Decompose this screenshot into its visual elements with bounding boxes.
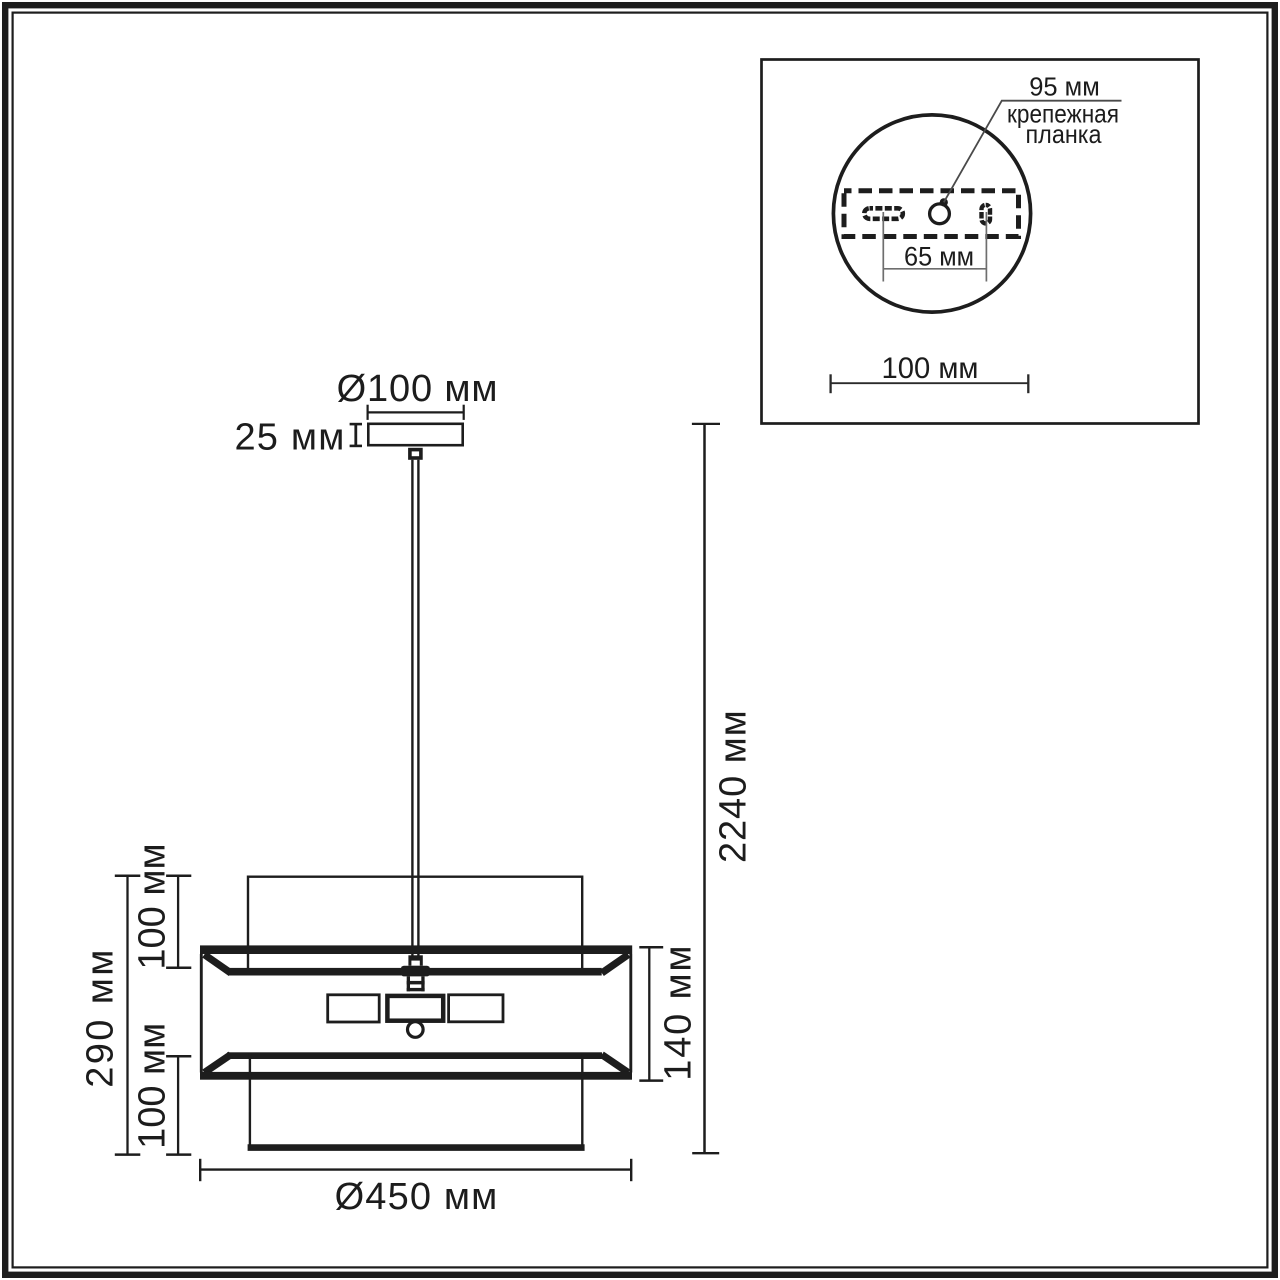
svg-text:планка: планка: [1026, 119, 1102, 149]
svg-text:290 мм: 290 мм: [80, 947, 122, 1088]
svg-text:65 мм: 65 мм: [904, 242, 974, 272]
svg-text:25 мм: 25 мм: [234, 416, 345, 458]
svg-text:95 мм: 95 мм: [1029, 74, 1100, 102]
svg-text:100 мм: 100 мм: [882, 352, 979, 385]
svg-text:Ø450 мм: Ø450 мм: [335, 1176, 499, 1218]
svg-text:100 мм: 100 мм: [132, 1023, 174, 1149]
svg-text:140 мм: 140 мм: [658, 944, 700, 1081]
svg-text:2240 мм: 2240 мм: [713, 709, 755, 863]
svg-text:100 мм: 100 мм: [132, 843, 174, 969]
svg-text:Ø100 мм: Ø100 мм: [337, 368, 499, 410]
